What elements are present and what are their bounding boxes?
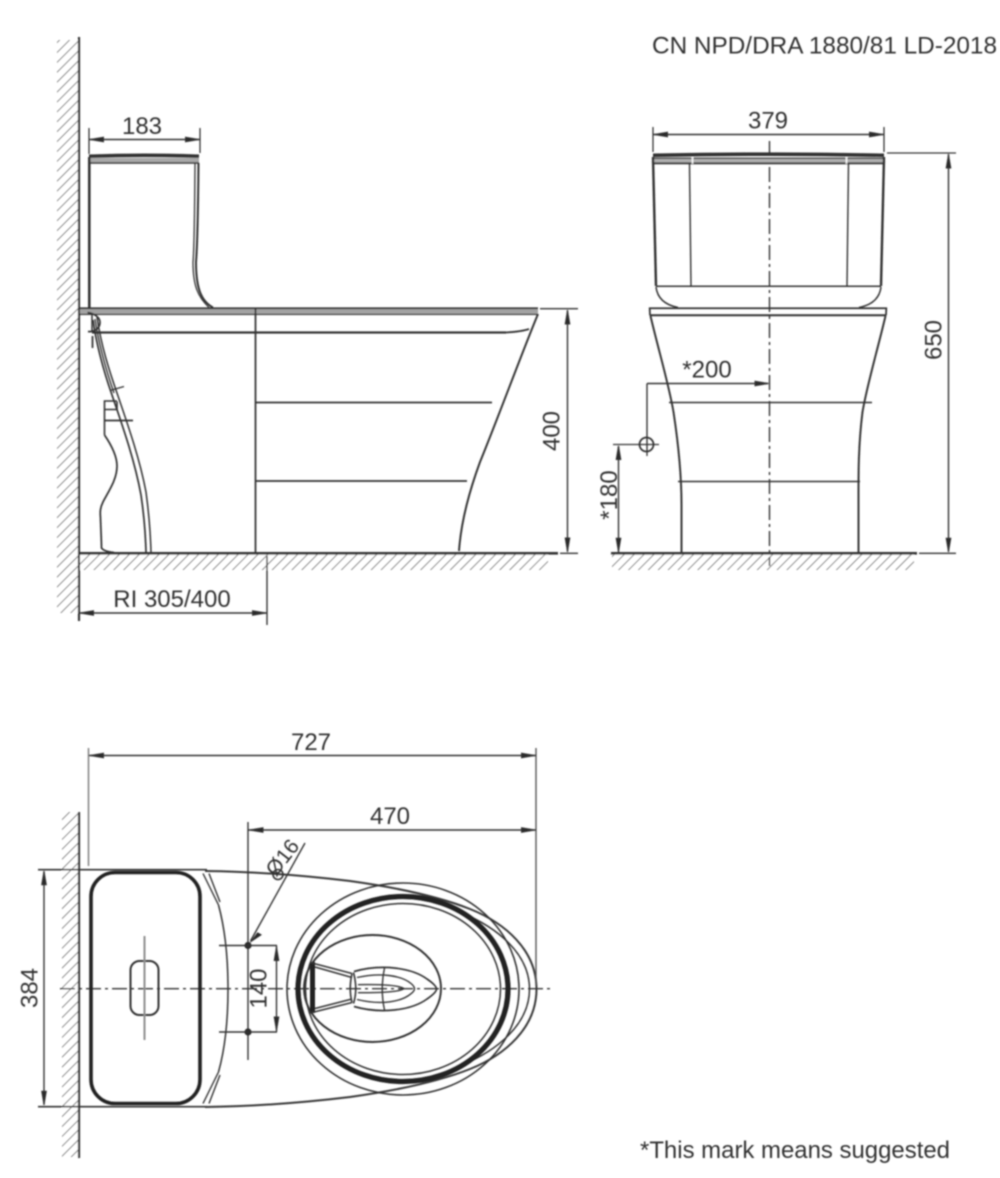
svg-text:*This mark means suggested: *This mark means suggested: [640, 1137, 950, 1164]
svg-text:140: 140: [246, 968, 273, 1008]
svg-text:*200: *200: [682, 357, 731, 384]
svg-text:384: 384: [17, 968, 44, 1008]
svg-text:650: 650: [921, 320, 948, 360]
svg-text:400: 400: [539, 411, 566, 451]
svg-text:470: 470: [370, 803, 410, 830]
svg-text:183: 183: [122, 113, 162, 140]
svg-text:CN NPD/DRA 1880/81 LD-2018: CN NPD/DRA 1880/81 LD-2018: [652, 33, 997, 60]
svg-text:RI 305/400: RI 305/400: [113, 586, 230, 613]
svg-text:*180: *180: [596, 470, 623, 519]
svg-text:727: 727: [291, 729, 331, 756]
svg-text:379: 379: [748, 108, 788, 135]
